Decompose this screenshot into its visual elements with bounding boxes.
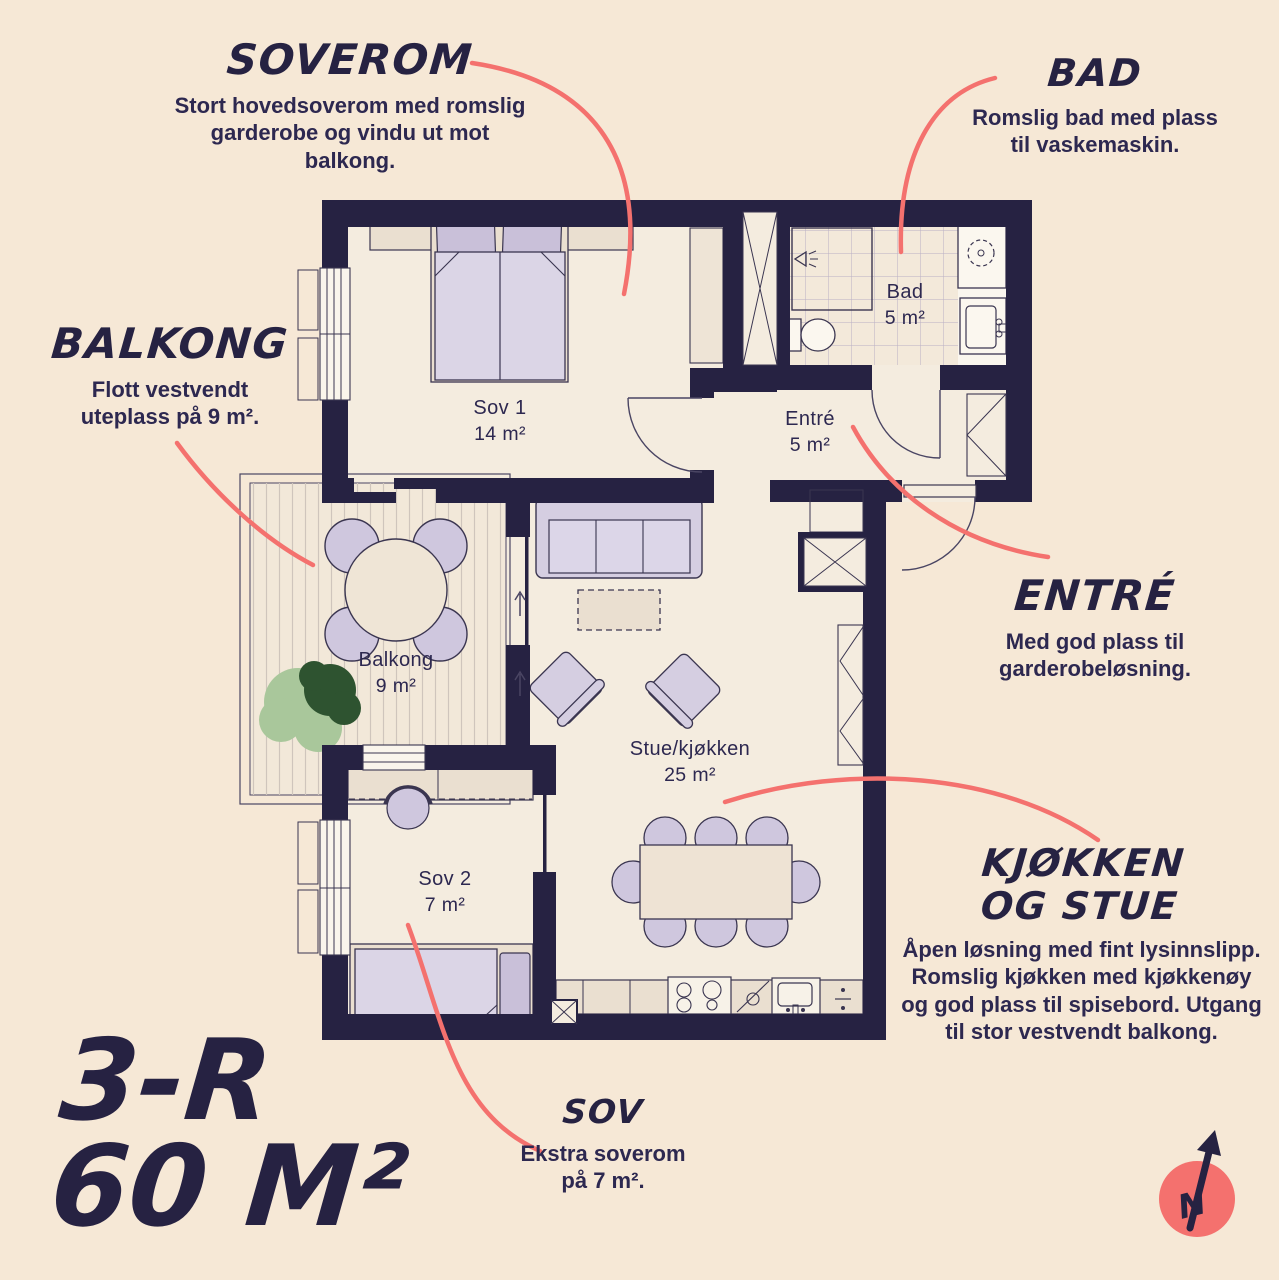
balkong-description: Flott vestvendt uteplass på 9 m².	[62, 376, 278, 431]
room-label-bad-name: Bad	[887, 281, 924, 303]
bad-heading: BAD	[928, 52, 1262, 95]
room-label-sov2-area: 7 m²	[425, 894, 466, 916]
cooktop	[668, 977, 731, 1014]
toilet	[789, 319, 835, 351]
room-label-sov1-name: Sov 1	[473, 397, 526, 419]
room-label-balkong-area: 9 m²	[376, 675, 417, 697]
entre-heading: ENTRÉ	[948, 572, 1242, 619]
compass: N	[1159, 1130, 1235, 1237]
room-label-balkong-name: Balkong	[358, 649, 433, 671]
annotation-kjokken: KJØKKEN OG STUE Åpen løsning med fint ly…	[884, 842, 1279, 1045]
sov1-wardrobe	[690, 228, 723, 363]
kjokken-heading: KJØKKEN OG STUE	[880, 842, 1279, 927]
annotation-entre: ENTRÉ Med god plass til garderobeløsning…	[950, 572, 1240, 683]
stue-wardrobe	[838, 625, 863, 765]
kitchen-sink	[772, 978, 820, 1014]
annotation-bad: BAD Romslig bad med plass til vaskemaski…	[930, 52, 1260, 158]
room-label-bad-area: 5 m²	[885, 307, 926, 329]
annotation-soverom: SOVEROM Stort hovedsoverom med romslig g…	[150, 36, 550, 174]
sov-description: Ekstra soverom på 7 m².	[513, 1140, 693, 1195]
entre-description: Med god plass til garderobeløsning.	[976, 628, 1214, 683]
shaft-bathroom	[738, 207, 782, 370]
room-label-sov1-area: 14 m²	[474, 423, 526, 445]
balcony-table	[345, 539, 447, 641]
floorplan-poster: Sov 1 14 m² Bad 5 m² Entré 5 m² Balkong …	[0, 0, 1279, 1280]
plan-title: 3-R 60 M²	[47, 1028, 426, 1241]
coffee-table	[578, 590, 660, 630]
kjokken-description: Åpen løsning med fint lysinnslipp. Romsl…	[899, 936, 1265, 1045]
annotation-balkong: BALKONG Flott vestvendt uteplass på 9 m²…	[25, 320, 315, 431]
plan-size-label: 60 M²	[47, 1134, 416, 1240]
room-label-entre-name: Entré	[785, 408, 835, 430]
sofa	[536, 498, 702, 578]
double-bed	[431, 218, 568, 382]
bathroom-sink	[960, 298, 1006, 354]
plan-type-label: 3-R	[56, 1028, 425, 1134]
window-sov2	[298, 820, 350, 955]
dining-table	[640, 845, 792, 919]
annotation-sov: SOV Ekstra soverom på 7 m².	[478, 1094, 728, 1194]
washing-machine	[958, 226, 1006, 288]
room-label-sov2-name: Sov 2	[418, 868, 471, 890]
kjokken-heading-line1: KJØKKEN	[884, 842, 1279, 885]
bad-description: Romslig bad med plass til vaskemaskin.	[969, 104, 1221, 159]
balkong-heading: BALKONG	[23, 320, 317, 367]
shaft-kitchen	[551, 1000, 577, 1024]
entre-wardrobe	[967, 394, 1006, 476]
room-label-entre-area: 5 m²	[790, 434, 831, 456]
kjokken-heading-line2: OG STUE	[880, 885, 1279, 928]
sov-heading: SOV	[476, 1094, 729, 1131]
room-label-stue-name: Stue/kjøkken	[630, 738, 750, 760]
window-sov2-balcony	[363, 745, 425, 770]
soverom-heading: SOVEROM	[148, 36, 552, 83]
soverom-description: Stort hovedsoverom med romslig garderobe…	[174, 92, 526, 174]
room-label-stue-area: 25 m²	[664, 764, 716, 786]
